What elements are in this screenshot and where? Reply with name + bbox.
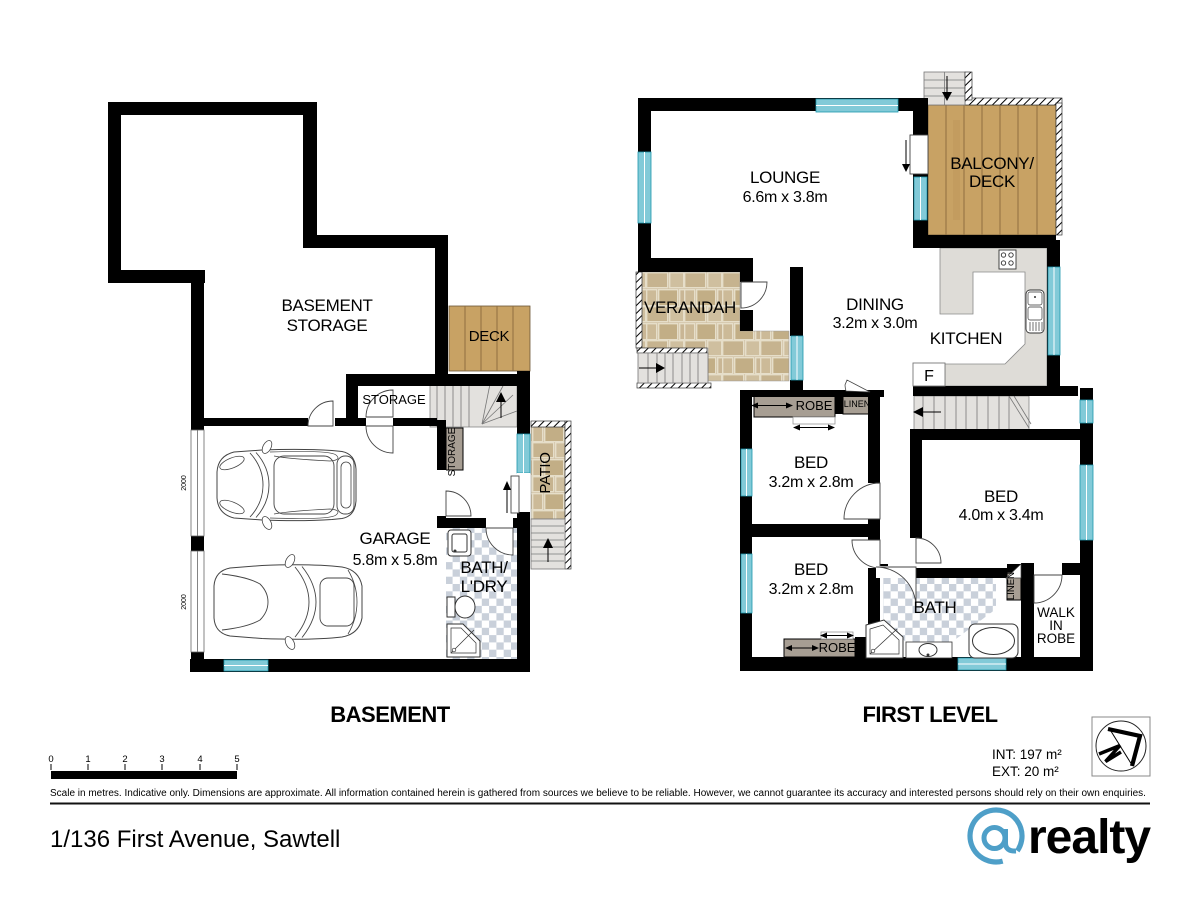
svg-text:1/136 First Avenue, Sawtell: 1/136 First Avenue, Sawtell: [50, 826, 340, 853]
svg-text:DECK: DECK: [469, 328, 510, 345]
svg-text:DECK: DECK: [969, 172, 1016, 191]
svg-text:VERANDAH: VERANDAH: [644, 298, 736, 317]
svg-text:3: 3: [159, 754, 164, 765]
svg-text:4.0m x 3.4m: 4.0m x 3.4m: [959, 507, 1044, 524]
svg-text:INT: 197 m²: INT: 197 m²: [992, 747, 1062, 762]
svg-text:6.6m x 3.8m: 6.6m x 3.8m: [743, 189, 828, 206]
svg-text:KITCHEN: KITCHEN: [930, 329, 1003, 348]
svg-text:3.2m x 3.0m: 3.2m x 3.0m: [833, 315, 918, 332]
svg-text:STORAGE: STORAGE: [287, 316, 368, 335]
svg-text:BED: BED: [794, 453, 828, 472]
svg-text:BATH/: BATH/: [460, 558, 508, 577]
svg-text:STORAGE: STORAGE: [362, 392, 426, 407]
svg-text:realty: realty: [1028, 811, 1151, 864]
svg-text:DINING: DINING: [846, 295, 904, 314]
svg-text:2000: 2000: [181, 594, 188, 610]
svg-text:FIRST LEVEL: FIRST LEVEL: [862, 702, 997, 727]
svg-text:5.8m x 5.8m: 5.8m x 5.8m: [353, 552, 438, 569]
svg-text:3.2m x 2.8m: 3.2m x 2.8m: [769, 581, 854, 598]
svg-text:L'DRY: L'DRY: [461, 577, 508, 596]
svg-text:BALCONY/: BALCONY/: [950, 154, 1034, 173]
svg-text:STORAGE: STORAGE: [447, 427, 458, 476]
svg-text:4: 4: [197, 754, 202, 765]
svg-text:ROBE: ROBE: [1037, 631, 1075, 646]
svg-text:ROBE: ROBE: [796, 398, 833, 413]
svg-text:1: 1: [85, 754, 90, 765]
svg-text:BATH: BATH: [914, 598, 957, 617]
svg-text:PATIO: PATIO: [537, 452, 554, 493]
svg-text:BED: BED: [984, 487, 1018, 506]
svg-text:5: 5: [234, 754, 239, 765]
svg-text:2: 2: [122, 754, 127, 765]
svg-text:2000: 2000: [181, 475, 188, 491]
svg-text:EXT: 20 m²: EXT: 20 m²: [992, 764, 1059, 779]
svg-text:ROBE: ROBE: [819, 640, 856, 655]
svg-text:LINEN: LINEN: [1006, 572, 1017, 600]
svg-text:LOUNGE: LOUNGE: [750, 168, 820, 187]
svg-text:BASEMENT: BASEMENT: [330, 702, 451, 727]
svg-text:LINEN: LINEN: [844, 399, 871, 409]
svg-text:BASEMENT: BASEMENT: [281, 296, 372, 315]
svg-text:F: F: [924, 368, 934, 385]
svg-text:0: 0: [48, 754, 53, 765]
svg-text:Scale in metres. Indicative on: Scale in metres. Indicative only. Dimens…: [50, 788, 1146, 799]
svg-text:3.2m x 2.8m: 3.2m x 2.8m: [769, 474, 854, 491]
svg-text:GARAGE: GARAGE: [360, 529, 431, 548]
svg-text:BED: BED: [794, 560, 828, 579]
